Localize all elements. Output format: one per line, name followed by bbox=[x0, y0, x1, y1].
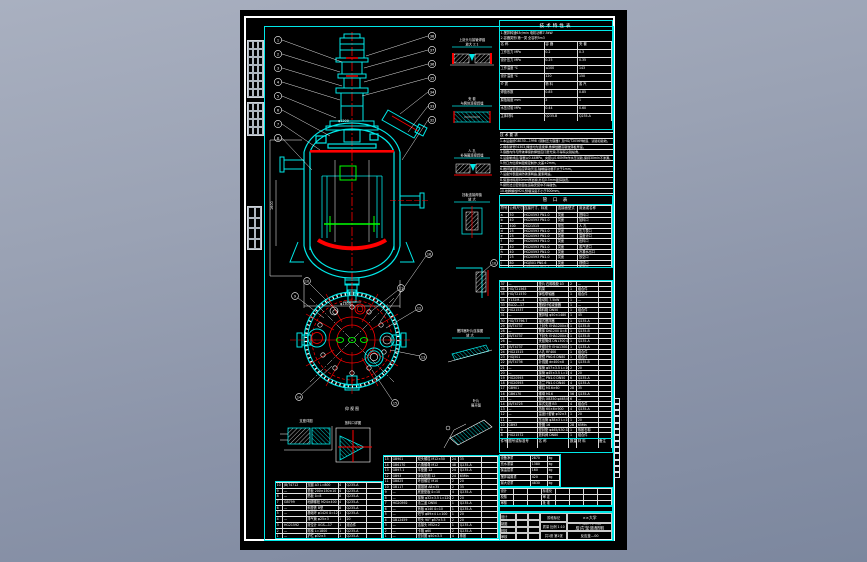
tech-table-title: 技术特性表 bbox=[500, 21, 612, 31]
parts-list-row: 5—基础环 φ1420 δ=121Q235-A bbox=[276, 510, 382, 516]
note-line: 11.设备安装验收按GB50231—98执行。 bbox=[500, 193, 613, 194]
bottom-details: 支座详图 放料口详图 bbox=[280, 418, 372, 462]
parts-list-row: 27JB/T4737下封头 EHA1200×101Q235-B bbox=[500, 333, 612, 338]
weld-details: 上封头与接管焊缝放大 2:1 夹 套与筒体连接焊缝 人 孔补强圈连接焊缝 挡板连… bbox=[444, 37, 497, 448]
parts-list-right: 37—垫片 石棉橡胶 δ32—36HG/T21563机架1组合件35HG/T21… bbox=[499, 280, 613, 453]
nozzle-table-row: e25HG20593 PN1.0突面温度计口 bbox=[500, 233, 612, 238]
mass-table: 设备净重2870kg充水重量1380kg保温层重160kg搅拌装置重420kg最… bbox=[499, 454, 561, 487]
elevation-view: 1600 φ1300 φ1200 bbox=[270, 32, 436, 310]
svg-text:放 大: 放 大 bbox=[466, 333, 474, 338]
parts-list-row: 14JB/T4725耳式支座 B34组合件 bbox=[500, 401, 612, 406]
nozzle-table-row: d25HG20593 PN1.0突面压力表口 bbox=[500, 228, 612, 233]
svg-text:12: 12 bbox=[417, 306, 421, 310]
svg-text:32: 32 bbox=[430, 118, 435, 122]
design-label: 设计 bbox=[500, 513, 516, 520]
svg-text:与筒体连接焊缝: 与筒体连接焊缝 bbox=[460, 101, 484, 106]
svg-text:支座详图: 支座详图 bbox=[299, 418, 313, 423]
svg-text:1: 1 bbox=[277, 38, 279, 42]
svg-text:7: 7 bbox=[277, 122, 279, 126]
parts-list-row: 25JB/T4737夹套封头 EHA1300×81Q235-A bbox=[500, 344, 612, 349]
parts-list-row: 2—爬梯 L=18001Q235-A bbox=[276, 528, 382, 534]
nozzle-table-row: k25HG20593 PN1.0突面备用口 bbox=[500, 265, 612, 268]
parts-list-row: 33BLD2—17摆线针轮减速器1— bbox=[500, 302, 612, 307]
parts-list-bottom-middle: 15GB901双头螺柱 M12×50243514GB6170六角螺母 M1248… bbox=[383, 455, 499, 539]
parts-list-row: 7GB799地脚螺栓 M24×4004Q235-A bbox=[276, 499, 382, 505]
svg-text:2: 2 bbox=[277, 52, 279, 56]
svg-text:叶片: 叶片 bbox=[473, 398, 480, 403]
svg-text:放料口详图: 放料口详图 bbox=[345, 420, 362, 425]
parts-list-row: 13—挡板 60×6×9004Q235-A bbox=[500, 406, 612, 411]
parts-list-row: 16GB6170螺母 M1656Q235-A bbox=[500, 391, 612, 396]
parts-list-row: 24HG21515人孔 RF4001组合件 bbox=[500, 349, 612, 354]
tech-characteristics-table: 技术特性表 1.搅拌转速63r/min 电机功率7.5kW 2.容器类别:第一类… bbox=[499, 20, 613, 130]
title-block: 设计 制图 校核 审核 阶段标记 质量 比例 1:10 共1张 第1张 ××大学… bbox=[499, 512, 613, 541]
part-balloons-right: 3837 3635 3433 32 bbox=[428, 32, 435, 123]
svg-text:φ1200: φ1200 bbox=[338, 119, 349, 123]
tech-table-row: 设计温度 ℃120150 bbox=[500, 73, 612, 81]
tech-table-header: 名 称容 器夹 套 bbox=[500, 41, 612, 49]
parts-list-row: 12—温度计套管 φ32×3120 bbox=[500, 411, 612, 416]
parts-list-row: 4—排气管 φ25×3120 bbox=[276, 516, 382, 522]
tech-table-row: 工作压力 MPa0.20.3 bbox=[500, 49, 612, 57]
parts-list-row: 19HG20593法兰 PN1.0 DN506Q235-A bbox=[500, 375, 612, 380]
svg-text:仰 视 图: 仰 视 图 bbox=[345, 406, 359, 411]
title-block-signatures: 设计 制图 校核 审核 bbox=[500, 513, 540, 540]
parts-list-row: 10GB117圆锥销 A8×35235 bbox=[384, 484, 498, 490]
svg-text:36: 36 bbox=[430, 62, 435, 66]
parts-list-row: 15—垫片 XB350 φ465/4306— bbox=[500, 396, 612, 401]
nozzle-table-row: i25HG20593 PN1.0突面放空口 bbox=[500, 254, 612, 259]
svg-text:33: 33 bbox=[430, 104, 435, 108]
parts-list-row: 4GB12459弯头 90° φ57×3.5220 bbox=[384, 517, 498, 523]
parts-list-row: 31—搅拌轴 φ50×1480145 bbox=[500, 312, 612, 317]
parts-list-row: 11GB825环首螺钉 M10220 bbox=[384, 478, 498, 484]
tech-table-row: 焊缝系数0.850.85 bbox=[500, 89, 612, 97]
nozzle-table-row: c400HG21515常压人 孔 bbox=[500, 223, 612, 228]
tech-table-row: 水压试验 MPa0.440.60 bbox=[500, 105, 612, 113]
parts-list-row: 23HGJ501视镜 PN0.6 DN801组合件 bbox=[500, 354, 612, 359]
sheet-count: 共1张 第1张 bbox=[540, 531, 567, 540]
svg-text:9: 9 bbox=[294, 294, 296, 298]
approve-label: 审核 bbox=[500, 533, 516, 540]
parts-list-row: 10GB93垫圈 162865Mn bbox=[500, 422, 612, 427]
title-block-stage: 阶段标记 质量 比例 1:10 共1张 第1张 bbox=[540, 513, 567, 540]
svg-text:14: 14 bbox=[297, 395, 301, 399]
svg-text:φ1300: φ1300 bbox=[340, 302, 351, 306]
parts-list-row: 29JB/T4737上封头 EHA1200×81Q235-B bbox=[500, 323, 612, 328]
svg-text:夹 套: 夹 套 bbox=[468, 96, 476, 101]
svg-text:补强圈连接焊缝: 补强圈连接焊缝 bbox=[460, 153, 484, 158]
parts-list-bottom-left: 10JB/T4712支腿 A3 L=8004Q235-A9—垫板 200×150… bbox=[275, 481, 383, 539]
svg-text:35: 35 bbox=[430, 76, 435, 80]
nozzle-table-row: g40HG20593 PN1.0突面蒸汽进口 bbox=[500, 244, 612, 249]
svg-text:13: 13 bbox=[421, 355, 425, 359]
parts-list-row: 11—压出管 φ38×3 L=1650120 bbox=[500, 417, 612, 422]
parts-list-row: 5—短节 φ89×4 L=100120 bbox=[384, 511, 498, 517]
technical-notes: 技 术 要 求1.本设备按GB150—1998《钢制压力容器》及HG/T2056… bbox=[500, 132, 613, 194]
parts-list-row: 1—密封圈 φ50×3.54橡胶 bbox=[384, 533, 498, 539]
signature-rows: 设计标准化校核审 定审核批 准 bbox=[499, 487, 613, 506]
nozzle-table-row: j80HGJ501 PN0.6突面视镜口 bbox=[500, 260, 612, 265]
svg-text:4: 4 bbox=[277, 80, 280, 84]
note-line: 1.本设备按GB150—1998《钢制压力容器》及HG/T20569制造、试验和… bbox=[500, 138, 613, 143]
svg-text:人 孔: 人 孔 bbox=[468, 148, 476, 153]
svg-text:展开图: 展开图 bbox=[471, 403, 482, 408]
svg-text:38: 38 bbox=[430, 34, 435, 38]
nozzle-table-row: a50HG20593 PN1.0突面进料口 bbox=[500, 212, 612, 217]
parts-list-row: 2—卡箍 φ602Q235-A bbox=[384, 528, 498, 534]
parts-list-row: 10JB/T4712支腿 A3 L=8004Q235-A bbox=[276, 482, 382, 488]
signature-row: 设计标准化 bbox=[500, 488, 612, 494]
parts-list-row: 32HG21537填料箱 DN501组合件 bbox=[500, 307, 612, 312]
parts-list-row: 15GB901双头螺柱 M12×502435 bbox=[384, 456, 498, 462]
note-line: 4.设备制成后,容器以0.44MPa、夹套以0.60MPa作水压试验,保持30m… bbox=[500, 155, 613, 160]
unit-name: ××大学 bbox=[567, 513, 612, 523]
parts-list-row: 13GB97.1平垫圈 1224Q235-A bbox=[384, 467, 498, 473]
parts-list-row: 12GB93弹簧垫圈 122465Mn bbox=[384, 473, 498, 479]
svg-text:6: 6 bbox=[277, 108, 280, 112]
drawing-title: 带搅拌夹套反应釜装配图 bbox=[567, 523, 612, 531]
parts-list-row: 8—接管 φ32×3.5 L=120220 bbox=[384, 495, 498, 501]
parts-list-row: 17GB901螺柱 M16×602835 bbox=[500, 385, 612, 390]
check-label: 校核 bbox=[500, 527, 516, 534]
nozzle-table-row: b40HG20593 PN1.0突面加料口 bbox=[500, 217, 612, 222]
parts-list-row: 35HG/T21570弹性联轴器1组合件 bbox=[500, 291, 612, 296]
part-balloons-left: 12 34 56 78 bbox=[274, 36, 281, 141]
svg-text:5: 5 bbox=[277, 94, 279, 98]
svg-text:16: 16 bbox=[427, 252, 431, 256]
parts-list-row: 9—底座垫板 δ=104Q235-A bbox=[384, 489, 498, 495]
tech-table-row: 介 质物 料蒸 汽 bbox=[500, 81, 612, 89]
title-block-name: ××大学 带搅拌夹套反应釜装配图 反应釜—00 bbox=[567, 513, 612, 540]
svg-text:1600: 1600 bbox=[270, 201, 274, 210]
parts-list-row: 9—垫板 200×150×104Q235-A bbox=[276, 488, 382, 494]
desktop-background: { "sheet": {"bg": "#000000", "accent": "… bbox=[0, 0, 867, 562]
parts-list-row: 22JB/T4736补强圈 dn400×81Q235-B bbox=[500, 359, 612, 364]
svg-text:搅拌器叶片连接图: 搅拌器叶片连接图 bbox=[457, 328, 484, 333]
parts-list-row: 6—盲板 φ140 δ=101Q235-A bbox=[384, 506, 498, 512]
nozzle-table-header: 符号公称尺寸 连接尺寸、标准连接面型式 用途或名称 bbox=[500, 205, 612, 212]
svg-text:10: 10 bbox=[492, 261, 496, 265]
parts-list-row: 20—接管 φ45×3.5 L=150420 bbox=[500, 370, 612, 375]
parts-list-row: 28—筒体 DN1200 δ=81Q235-B bbox=[500, 328, 612, 333]
parts-list-row: 3HG21592液位计 UGS—171组合件 bbox=[276, 522, 382, 528]
svg-text:放 大: 放 大 bbox=[468, 197, 476, 202]
svg-text:3: 3 bbox=[277, 66, 279, 70]
mass-table-row: 充水重量1380kg bbox=[500, 461, 560, 467]
svg-text:15: 15 bbox=[393, 401, 397, 405]
svg-text:37: 37 bbox=[430, 48, 435, 52]
plan-view: 910 1112 1314 1516 仰 视 图 bbox=[290, 251, 432, 411]
parts-list-row: 8HG21572放料阀 DN801组合件 bbox=[500, 432, 612, 437]
draft-label: 制图 bbox=[500, 520, 516, 527]
signature-row: 校核审 定 bbox=[500, 494, 612, 500]
mass-table-row: 搅拌装置重420kg bbox=[500, 474, 560, 480]
parts-list-row: 1—护栏 φ32×31Q235-A bbox=[276, 533, 382, 539]
svg-text:挡板连接焊缝: 挡板连接焊缝 bbox=[462, 192, 482, 197]
nozzle-table: 管 口 表 符号公称尺寸 连接尺寸、标准连接面型式 用途或名称 a50HG205… bbox=[499, 195, 613, 268]
mass-table-row: 保温层重160kg bbox=[500, 467, 560, 473]
parts-list-row: 21—接管 φ57×3.5 L=160220 bbox=[500, 365, 612, 370]
tech-table-row: 腐蚀裕度 mm21 bbox=[500, 97, 612, 105]
parts-list-row: 34Y132M—4电动机 7.5kW1— bbox=[500, 297, 612, 302]
tech-table-row: 主体材料Q235-BQ235-A bbox=[500, 113, 612, 121]
parts-list-row: 7HG20592法兰盖 DN501Q235-A bbox=[384, 500, 498, 506]
stage-label: 阶段标记 bbox=[540, 513, 567, 522]
parts-list-row: 26—夹套筒体 DN1300 δ=61Q235-A bbox=[500, 338, 612, 343]
tech-table-row: 工作温度 ℃≤100143 bbox=[500, 65, 612, 73]
parts-list-row: 9—密封垫 φ465/430 δ21橡胶石棉 bbox=[500, 427, 612, 432]
drawing-number: 反应釜—00 bbox=[567, 531, 612, 540]
svg-text:11: 11 bbox=[399, 286, 403, 290]
parts-list-row: 36HG/T21563机架1组合件 bbox=[500, 286, 612, 291]
mass-table-row: 最大总重4830kg bbox=[500, 480, 560, 486]
svg-text:34: 34 bbox=[430, 90, 435, 94]
tech-table-row: 设计压力 MPa0.250.35 bbox=[500, 57, 612, 65]
cad-drawing-canvas[interactable]: 1600 φ1300 φ1200 bbox=[240, 10, 627, 550]
svg-text:上封头与接管焊缝: 上封头与接管焊缝 bbox=[459, 37, 486, 42]
parts-list-header: 件号图号或标准号 名 称数量 材 料备注 bbox=[500, 438, 612, 448]
parts-list-row: 3—活接头 M52×21Q235-A bbox=[384, 522, 498, 528]
parts-list-row: 18HG20593法兰 PN1.0 DN404Q235-A bbox=[500, 380, 612, 385]
parts-list-row: 14GB6170六角螺母 M1248Q235-A bbox=[384, 462, 498, 468]
parts-list-row: 6—斜垫铁 B型8Q235-A bbox=[276, 505, 382, 511]
mass-table-row: 设备净重2870kg bbox=[500, 455, 560, 461]
nozzle-table-row: f80HG20593 PN1.0突面出料口 bbox=[500, 238, 612, 243]
mass-scale-cell: 质量 比例 1:10 bbox=[540, 522, 567, 531]
parts-list-row: 30HG/T3796.7锚式搅拌器1Q235-A bbox=[500, 318, 612, 323]
parts-list-row: 37—垫片 石棉橡胶 δ32— bbox=[500, 281, 612, 286]
svg-text:10: 10 bbox=[305, 279, 309, 283]
svg-text:放大 2:1: 放大 2:1 bbox=[466, 42, 479, 47]
parts-list-row: 8—筋板 δ=88Q235-A bbox=[276, 493, 382, 499]
nozzle-table-row: h40HG20593 PN1.0突面冷凝水出口 bbox=[500, 249, 612, 254]
nozzle-table-title: 管 口 表 bbox=[500, 196, 612, 205]
